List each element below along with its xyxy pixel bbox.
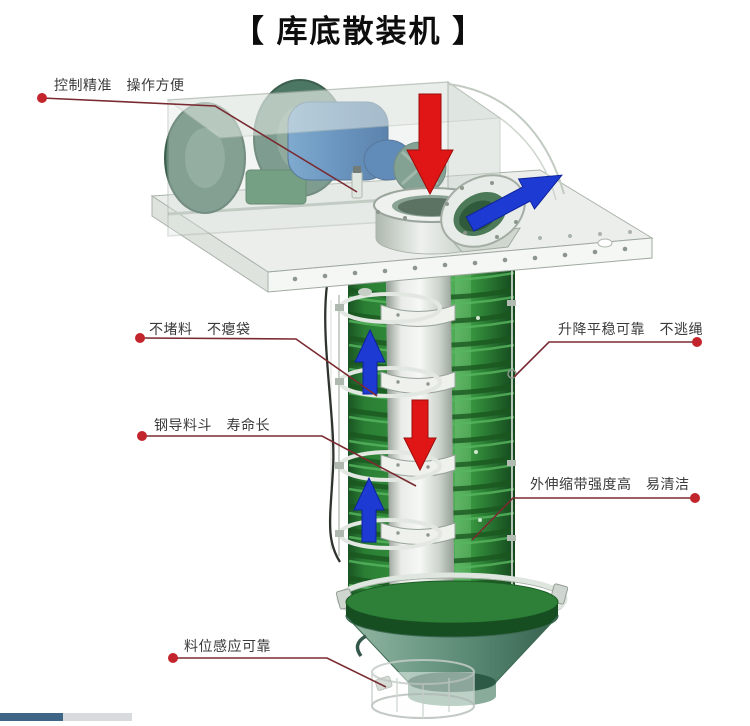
hopper-handle	[357, 636, 366, 656]
callout-dot-level-sensor	[168, 653, 178, 663]
callout-dot-control	[37, 93, 47, 103]
callout-line-lifting	[514, 342, 697, 377]
product-diagram-page: 【 库底散装机 】 控制精准 操作方便 不堵料 不瘪袋 钢导料斗 寿命长 升降平…	[0, 0, 750, 721]
telescopic-column	[348, 252, 515, 607]
callout-dot-lifting	[692, 337, 702, 347]
callout-label-control: 控制精准 操作方便	[54, 76, 185, 94]
machine-diagram	[0, 0, 750, 721]
callout-line-level-sensor	[173, 658, 386, 687]
callout-label-steel-hopper: 钢导料斗 寿命长	[154, 416, 270, 434]
page-scrollbar[interactable]	[0, 713, 750, 721]
scrollbar-thumb[interactable]	[0, 713, 63, 721]
discharge-hopper	[336, 575, 568, 718]
scrollbar-track[interactable]	[63, 713, 132, 721]
callout-label-level-sensor: 料位感应可靠	[184, 637, 271, 655]
callout-label-lifting: 升降平稳可靠 不逃绳	[558, 320, 703, 338]
power-cable	[325, 285, 340, 562]
page-title: 【 库底散装机 】	[0, 6, 734, 51]
callout-dot-outer-belt	[690, 493, 700, 503]
callout-dot-no-clog	[135, 333, 145, 343]
callout-label-no-clog: 不堵料 不瘪袋	[149, 320, 251, 338]
callout-dot-steel-hopper	[137, 431, 147, 441]
callout-label-outer-belt: 外伸缩带强度高 易清洁	[530, 475, 690, 493]
